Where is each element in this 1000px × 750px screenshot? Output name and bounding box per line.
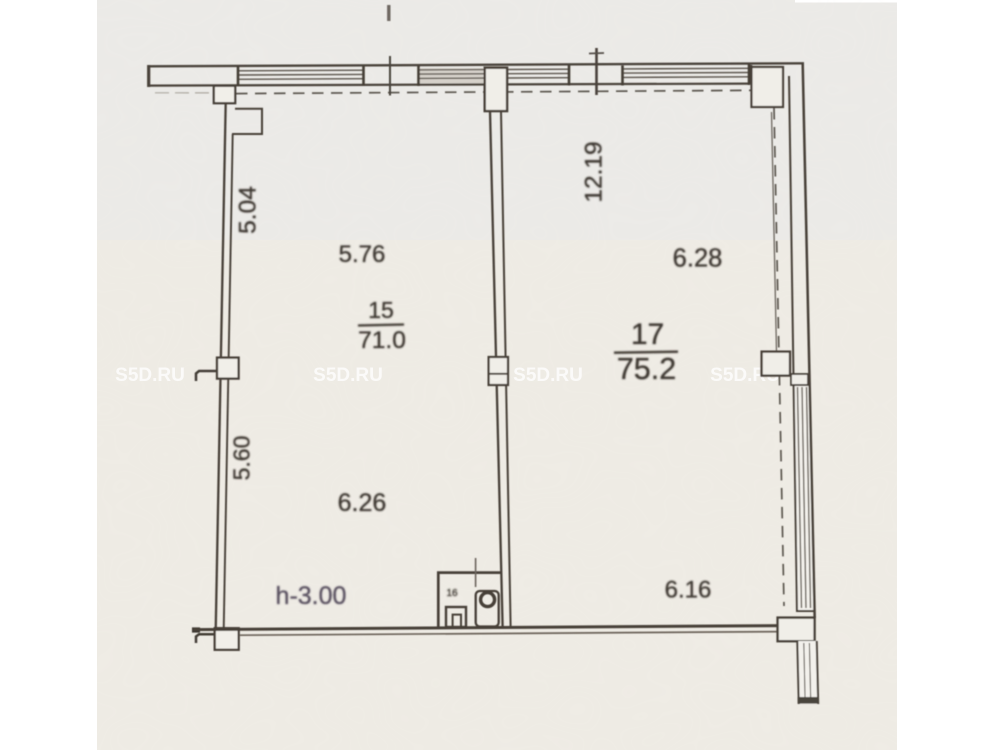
svg-text:71.0: 71.0 <box>358 327 406 354</box>
svg-text:17: 17 <box>631 318 664 351</box>
svg-text:5.60: 5.60 <box>229 436 255 481</box>
svg-text:75.2: 75.2 <box>617 352 676 386</box>
svg-text:5.76: 5.76 <box>339 241 386 268</box>
svg-text:6.16: 6.16 <box>665 577 712 604</box>
svg-text:5.04: 5.04 <box>235 186 262 234</box>
svg-text:h-3.00: h-3.00 <box>276 582 347 610</box>
svg-text:16: 16 <box>447 588 459 599</box>
svg-text:12.19: 12.19 <box>581 141 608 202</box>
svg-text:S5D.RU: S5D.RU <box>115 365 185 386</box>
svg-text:6.28: 6.28 <box>673 245 723 273</box>
svg-text:S5D.RU: S5D.RU <box>513 365 583 386</box>
svg-text:S5D.RU: S5D.RU <box>313 365 383 386</box>
svg-text:6.26: 6.26 <box>338 489 387 517</box>
svg-text:15: 15 <box>368 297 394 323</box>
